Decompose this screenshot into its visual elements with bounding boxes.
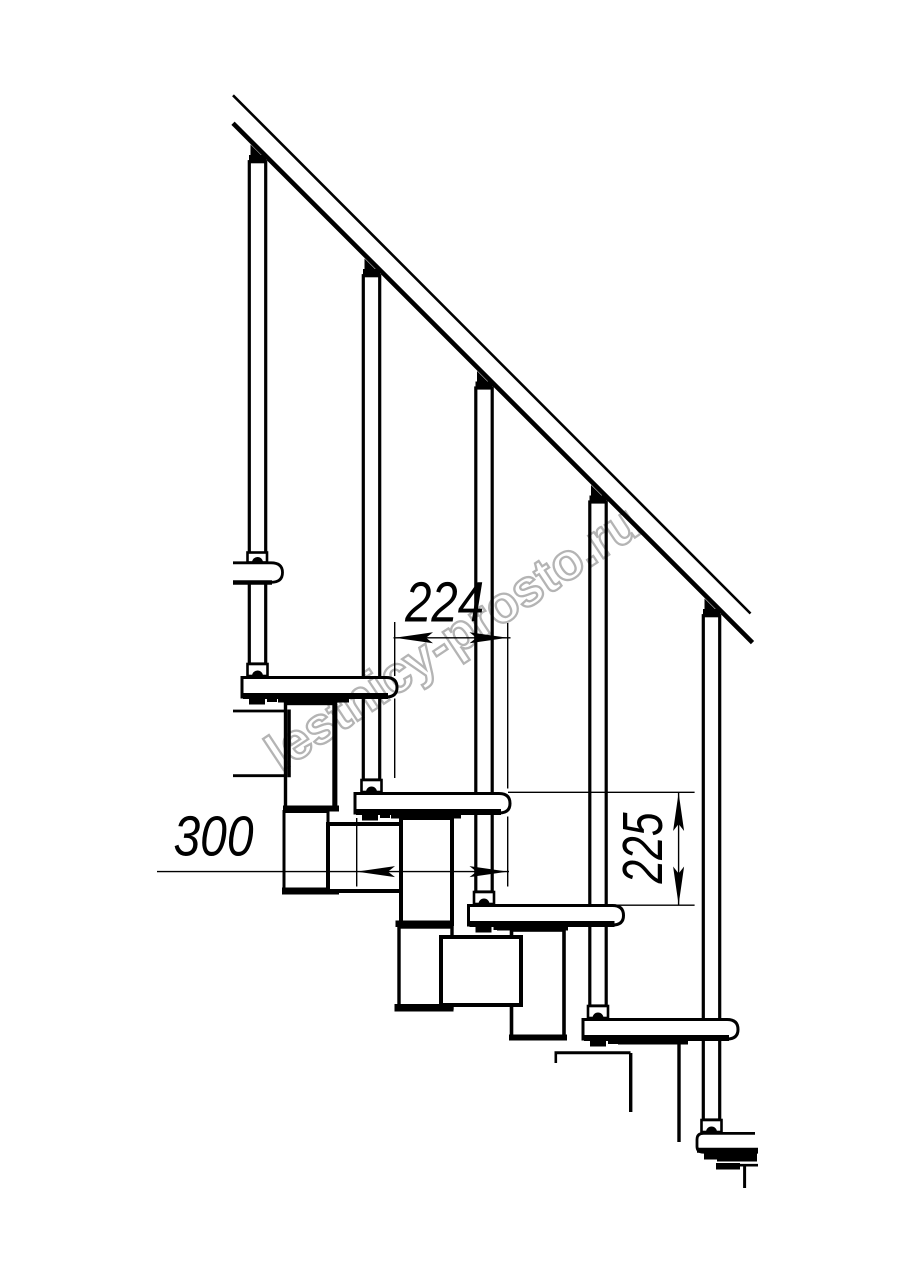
svg-text:300: 300: [174, 805, 254, 869]
svg-text:225: 225: [611, 812, 675, 884]
